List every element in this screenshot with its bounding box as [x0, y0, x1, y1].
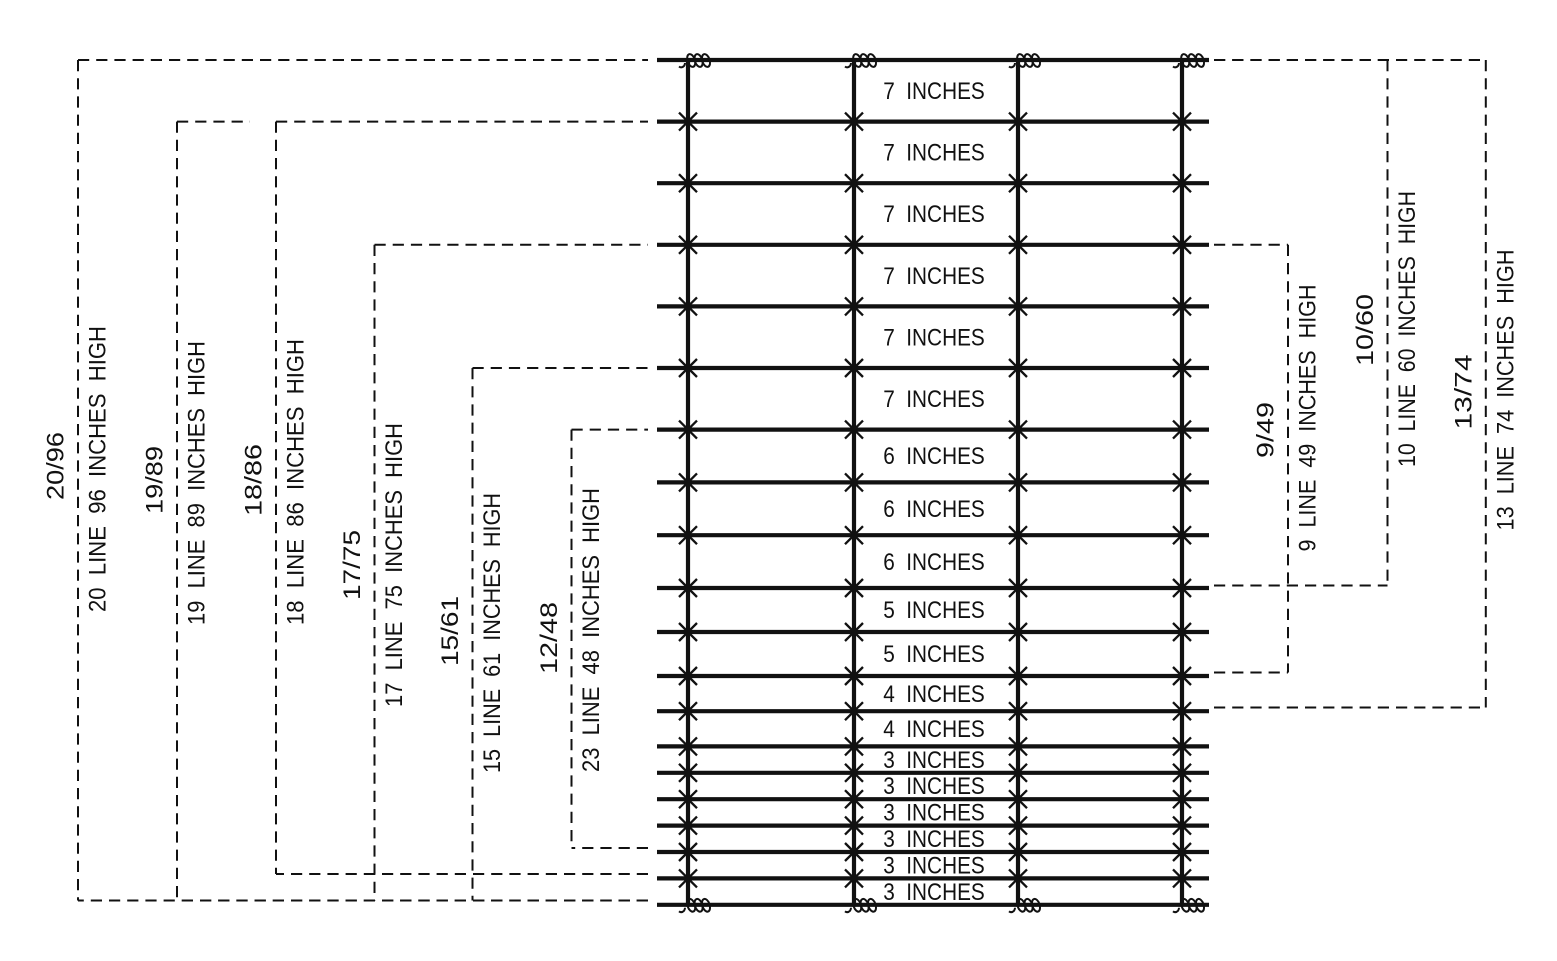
- svg-text:19 LINE 89 INCHES HIGH: 19 LINE 89 INCHES HIGH: [184, 341, 211, 625]
- svg-text:23 LINE 48 INCHES HIGH: 23 LINE 48 INCHES HIGH: [578, 488, 605, 772]
- svg-text:3 INCHES: 3 INCHES: [883, 800, 985, 827]
- svg-text:3 INCHES: 3 INCHES: [883, 773, 985, 800]
- svg-text:6 INCHES: 6 INCHES: [883, 549, 985, 576]
- svg-text:6 INCHES: 6 INCHES: [883, 443, 985, 470]
- svg-text:18 LINE 86 INCHES HIGH: 18 LINE 86 INCHES HIGH: [283, 339, 310, 625]
- svg-text:18/86: 18/86: [241, 444, 268, 516]
- svg-text:3 INCHES: 3 INCHES: [883, 747, 985, 774]
- svg-text:19/89: 19/89: [142, 446, 169, 514]
- svg-text:7 INCHES: 7 INCHES: [883, 140, 985, 167]
- svg-text:9 LINE 49 INCHES HIGH: 9 LINE 49 INCHES HIGH: [1295, 285, 1322, 552]
- svg-text:10/60: 10/60: [1352, 294, 1379, 366]
- svg-text:7 INCHES: 7 INCHES: [883, 78, 985, 105]
- svg-text:20 LINE 96 INCHES HIGH: 20 LINE 96 INCHES HIGH: [85, 326, 112, 612]
- svg-text:7 INCHES: 7 INCHES: [883, 201, 985, 228]
- svg-text:3 INCHES: 3 INCHES: [883, 879, 985, 906]
- svg-text:3 INCHES: 3 INCHES: [883, 852, 985, 879]
- svg-text:5 INCHES: 5 INCHES: [883, 641, 985, 668]
- svg-text:7 INCHES: 7 INCHES: [883, 324, 985, 351]
- svg-text:7 INCHES: 7 INCHES: [883, 386, 985, 413]
- svg-text:9/49: 9/49: [1253, 402, 1280, 458]
- svg-text:13 LINE 74 INCHES HIGH: 13 LINE 74 INCHES HIGH: [1493, 250, 1520, 531]
- svg-text:13/74: 13/74: [1451, 355, 1478, 430]
- svg-text:6 INCHES: 6 INCHES: [883, 496, 985, 523]
- svg-text:4 INCHES: 4 INCHES: [883, 681, 985, 708]
- svg-text:17 LINE 75 INCHES HIGH: 17 LINE 75 INCHES HIGH: [381, 423, 408, 707]
- svg-text:10 LINE 60 INCHES HIGH: 10 LINE 60 INCHES HIGH: [1394, 191, 1421, 467]
- svg-text:5 INCHES: 5 INCHES: [883, 597, 985, 624]
- svg-text:7 INCHES: 7 INCHES: [883, 263, 985, 290]
- svg-text:17/75: 17/75: [339, 530, 366, 600]
- svg-text:12/48: 12/48: [536, 602, 563, 674]
- svg-text:3 INCHES: 3 INCHES: [883, 826, 985, 853]
- svg-text:4 INCHES: 4 INCHES: [883, 716, 985, 743]
- svg-text:20/96: 20/96: [43, 432, 70, 500]
- svg-text:15/61: 15/61: [437, 596, 464, 666]
- svg-text:15 LINE 61 INCHES HIGH: 15 LINE 61 INCHES HIGH: [479, 493, 506, 773]
